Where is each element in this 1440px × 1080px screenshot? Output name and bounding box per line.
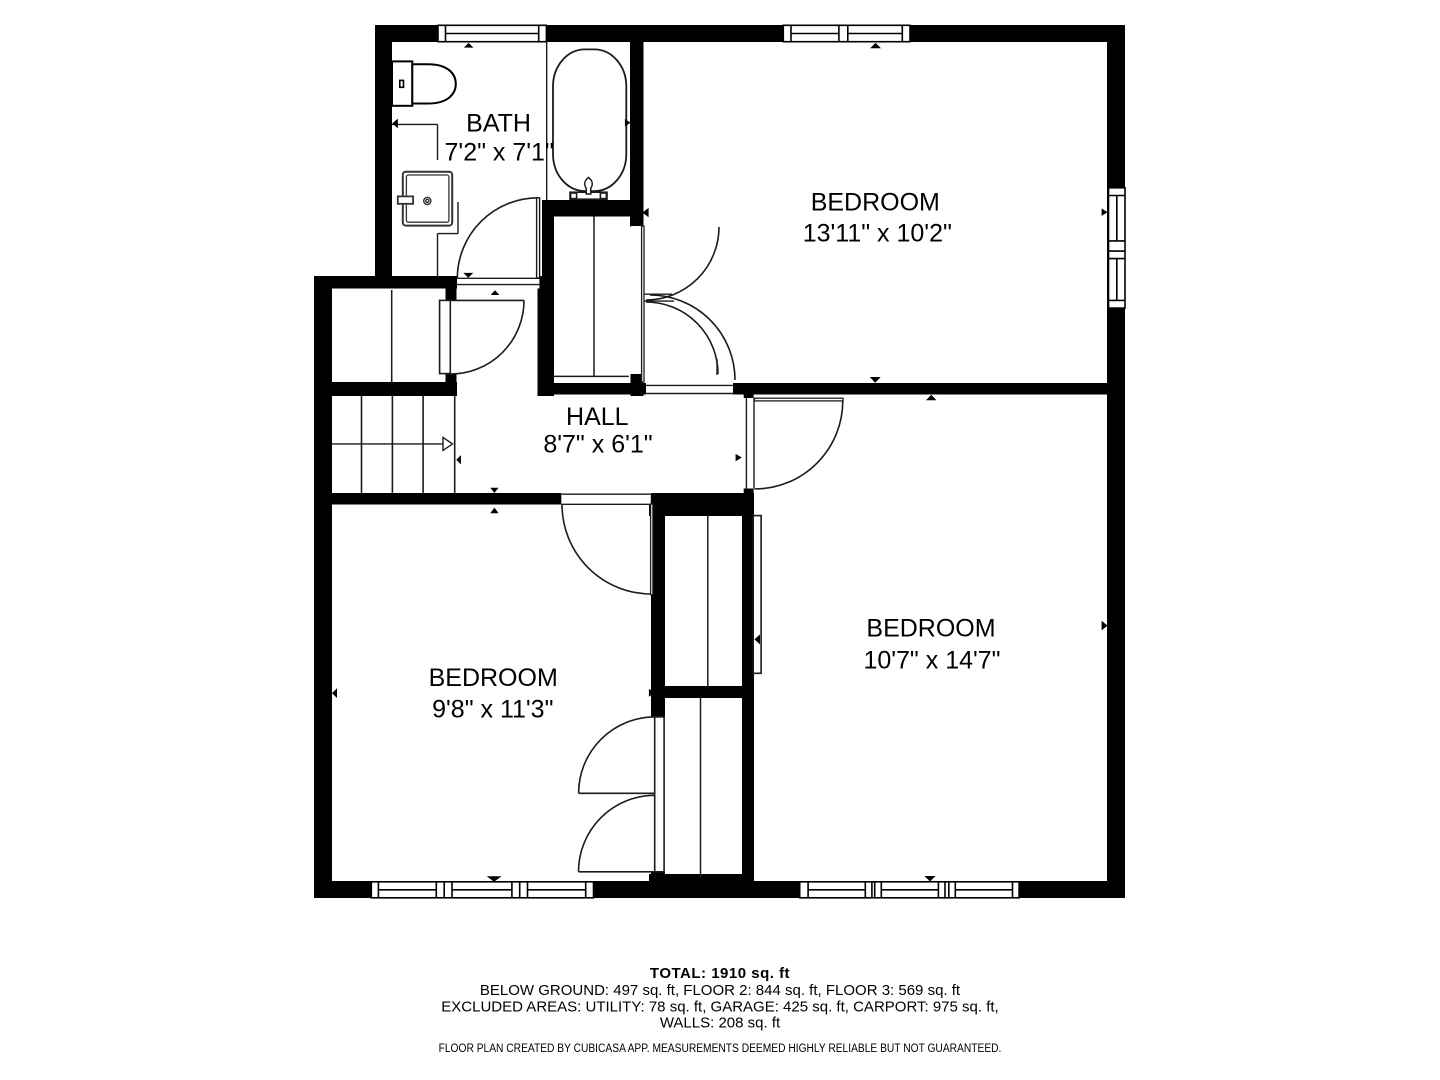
svg-text:FLOOR PLAN CREATED BY CUBICASA: FLOOR PLAN CREATED BY CUBICASA APP. MEAS… bbox=[439, 1042, 1002, 1055]
svg-text:BEDROOM: BEDROOM bbox=[429, 664, 558, 692]
svg-text:TOTAL: 1910 sq. ft: TOTAL: 1910 sq. ft bbox=[650, 965, 790, 982]
svg-text:10'7" x 14'7": 10'7" x 14'7" bbox=[863, 647, 1000, 675]
svg-text:WALLS: 208 sq. ft: WALLS: 208 sq. ft bbox=[660, 1014, 781, 1031]
svg-text:9'8" x 11'3": 9'8" x 11'3" bbox=[432, 696, 553, 724]
svg-text:BEDROOM: BEDROOM bbox=[866, 614, 995, 642]
svg-text:7'2" x 7'1": 7'2" x 7'1" bbox=[445, 138, 554, 166]
svg-text:BELOW GROUND: 497 sq. ft, FLOO: BELOW GROUND: 497 sq. ft, FLOOR 2: 844 s… bbox=[480, 982, 961, 999]
svg-text:8'7" x 6'1": 8'7" x 6'1" bbox=[543, 431, 652, 459]
svg-text:13'11" x 10'2": 13'11" x 10'2" bbox=[803, 219, 952, 247]
svg-text:BATH: BATH bbox=[466, 109, 531, 137]
svg-text:HALL: HALL bbox=[566, 403, 629, 431]
svg-text:EXCLUDED AREAS: UTILITY: 78 sq: EXCLUDED AREAS: UTILITY: 78 sq. ft, GARA… bbox=[441, 999, 998, 1016]
svg-text:BEDROOM: BEDROOM bbox=[811, 188, 940, 216]
